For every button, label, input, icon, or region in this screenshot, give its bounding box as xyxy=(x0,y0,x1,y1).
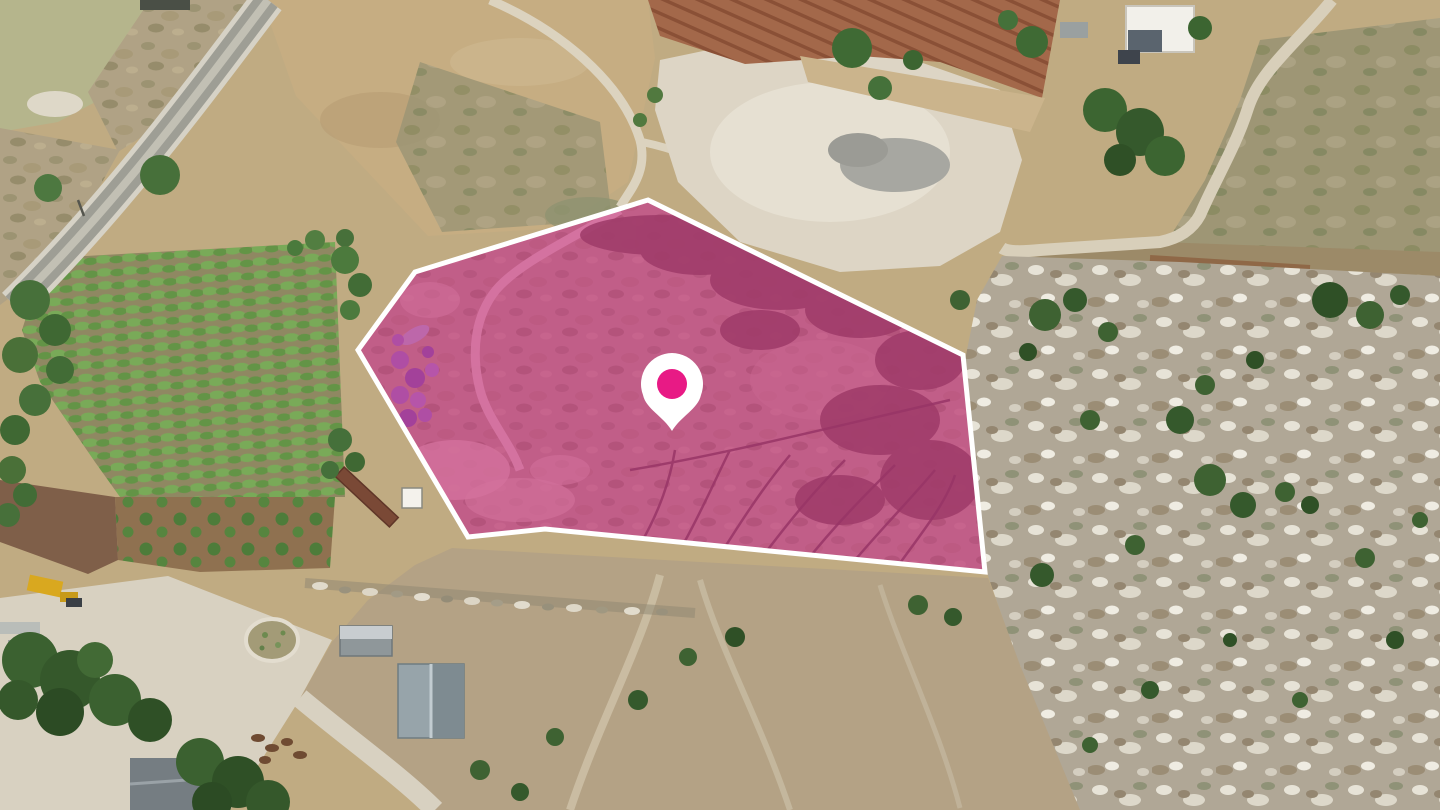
shed xyxy=(1060,22,1088,38)
roundabout xyxy=(246,619,298,661)
white-shed xyxy=(402,488,422,508)
aerial-photo-canvas xyxy=(0,0,1440,810)
bare-dirt-patch xyxy=(27,91,83,117)
aerial-parcel-map xyxy=(0,0,1440,810)
dark-structure xyxy=(140,0,190,10)
warehouse-building xyxy=(398,664,464,738)
grey-building xyxy=(340,626,392,656)
pin-dot-icon xyxy=(657,369,687,399)
orchard-field xyxy=(115,497,335,572)
